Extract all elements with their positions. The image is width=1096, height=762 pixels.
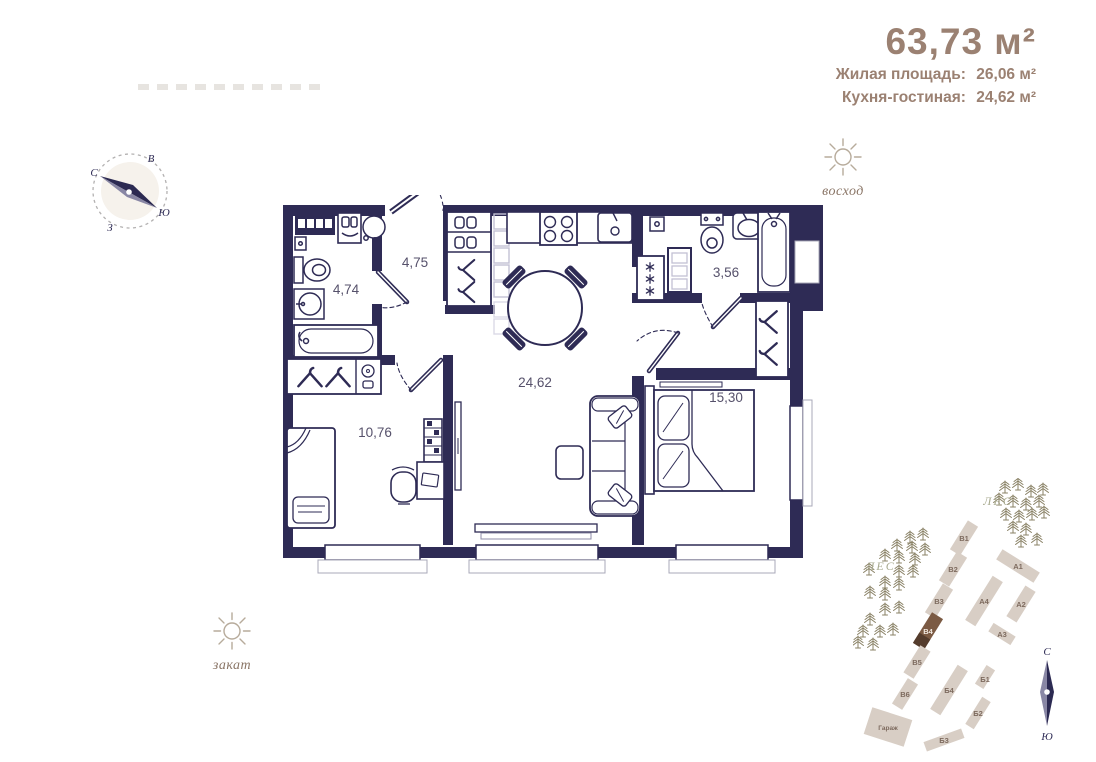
building-label-v2: В2 [948,565,958,574]
living-area-value: 26,06 м² [976,66,1036,83]
entrance-door [391,195,443,212]
room-area-bedroom-master: 15,30 [709,390,743,405]
siteplan: ЛЕС ЛЕС В1 В2 В3 В4 В5 [853,478,1096,762]
building-label-v3: В3 [934,597,944,606]
building-label-b3: Б3 [939,736,949,745]
kitchen-area-label: Кухня-гостиная: [842,89,966,106]
stove [540,212,577,245]
building-label-a3: А3 [997,630,1007,639]
area-summary: 63,73 м² Жилая площадь: 26,06 м² Кухня-г… [836,22,1036,108]
room-area-bathroom-second: 3,56 [713,265,739,280]
building-label-a4: А4 [979,597,989,606]
window-sill [318,560,427,573]
room-area-bedroom-small: 10,76 [358,425,392,440]
forest-label-right: ЛЕС [982,494,1012,508]
desk [417,462,444,499]
compass-south: Ю [157,207,170,219]
bathtub [294,325,378,357]
window [325,545,420,560]
wall-box [650,217,664,231]
room-area-bathroom-main: 4,74 [333,282,360,297]
coffee-table [556,446,583,479]
building-label-v5: В5 [912,658,922,667]
building-label-a2: А2 [1016,600,1026,609]
sun-icon [798,138,888,178]
floorplan: 4,74 4,75 24,62 3,56 10,76 15,30 [283,195,828,580]
compass-west: З [107,222,113,234]
wall-box [295,237,306,250]
corridor-wardrobe [756,301,788,377]
building-label-b2: Б2 [973,709,983,718]
window [676,545,768,560]
living-area-label: Жилая площадь: [836,66,966,83]
sun-icon [187,612,277,652]
site-compass-north: С [1043,646,1051,658]
sofa [590,396,640,516]
towel-shelf [295,214,335,235]
sunset-block: закат [187,612,277,674]
round-table [508,271,582,345]
bedroom-small-furniture [287,359,444,528]
site-compass-south: Ю [1040,731,1053,743]
edge-artifact [138,84,323,90]
compass-north: С [90,167,98,179]
site-compass-icon: С Ю [1040,646,1054,743]
toilet [294,257,330,283]
bookshelf [424,419,442,462]
utility-shaft [668,248,691,292]
building-label-a1: А1 [1013,562,1023,571]
window-sill [669,560,775,573]
kitchen-area-value: 24,62 м² [976,89,1036,106]
window-sill [469,560,605,573]
compass-east: В [148,153,155,165]
window [476,545,598,560]
desk-chair [391,467,416,504]
wall-tv [455,402,461,490]
washing-machine [338,213,361,243]
forest-label-left: ЛЕС [865,559,895,573]
compass-icon: С В Ю З [85,138,185,242]
kitchen-area-row: Кухня-гостиная: 24,62 м² [836,87,1036,108]
tv-console [475,524,597,539]
radiator [660,382,722,387]
room-area-kitchen-living: 24,62 [518,375,552,390]
room-area-hallway: 4,75 [402,255,428,270]
sunrise-block: восход [798,138,888,200]
living-area-row: Жилая площадь: 26,06 м² [836,64,1036,85]
living-room [455,396,640,539]
toilet [701,213,723,253]
building-label-v6: В6 [900,690,910,699]
window-sill [803,400,812,506]
compass-pivot [126,189,132,195]
hall-wardrobe [447,212,491,306]
bathtub [758,212,790,292]
sunset-label: закат [187,658,277,674]
kitchen-sink [598,213,632,242]
building-label-garage: Гараж [878,725,898,732]
wardrobe [287,359,381,394]
fridge [637,256,664,300]
building-label-b1: Б1 [980,675,990,684]
floorplan-page: 63,73 м² Жилая площадь: 26,06 м² Кухня-г… [0,0,1096,762]
building-label-v4: В4 [923,627,933,636]
building-label-v1: В1 [959,534,969,543]
dining-set [501,264,588,351]
washbasin-cabinet [294,289,324,319]
building-label-b4: Б4 [944,686,954,695]
total-area: 63,73 м² [836,22,1036,62]
single-bed [287,428,335,528]
window [790,406,803,500]
wall-niche [795,241,819,283]
